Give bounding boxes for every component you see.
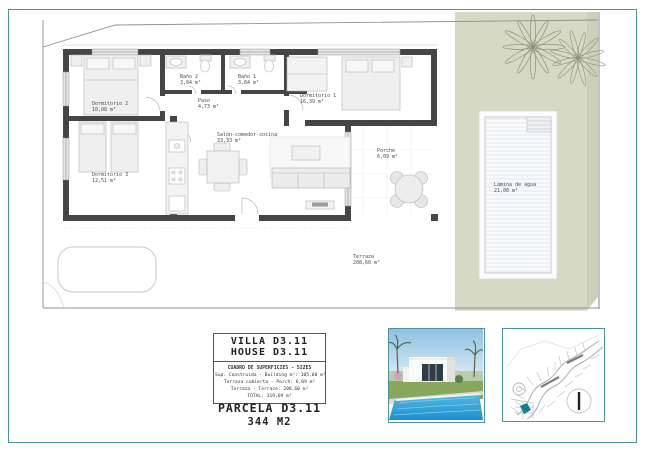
- site-plan-graphic: [503, 329, 603, 420]
- sizes-line: TOTAL: 319,69 m²: [215, 393, 324, 400]
- room-label-terraza: Terraza 208,60 m²: [353, 254, 380, 267]
- pool-steps: [527, 117, 551, 132]
- room-name: Dormitorio 3: [92, 172, 128, 178]
- room-name: Paso: [198, 98, 210, 104]
- room-area: 10,08 m²: [92, 107, 128, 113]
- room-name: Lámina de agua: [494, 182, 536, 188]
- room-area: 6,09 m²: [377, 154, 398, 160]
- parcel-area: 344 M2: [213, 415, 326, 429]
- site-plan-map: [502, 328, 605, 422]
- room-label-dormitorio-1: Dormitorio 1 16,39 m²: [300, 93, 336, 106]
- room-label-salon: Salón-comedor-cocina 33,33 m²: [217, 132, 277, 145]
- room-name: Baño 1: [238, 74, 256, 80]
- room-area: 16,39 m²: [300, 99, 336, 105]
- room-label-bano-1: Baño 1 3,84 m²: [238, 74, 259, 87]
- room-label-bano-2: Baño 2 3,84 m²: [180, 74, 201, 87]
- pool: [479, 111, 557, 279]
- room-area: 3,84 m²: [238, 80, 259, 86]
- plan-sheet: Dormitorio 2 10,08 m² Dormitorio 3 12,51…: [0, 0, 645, 451]
- villa-render-graphic: [389, 329, 483, 421]
- house-title: HOUSE D3.11: [214, 347, 325, 358]
- villa-render-image: [388, 328, 485, 423]
- room-name: Salón-comedor-cocina: [217, 132, 277, 138]
- sizes-line: Sup. Construida - Building m²: 105,00 m²: [215, 372, 324, 379]
- room-area: 4,73 m²: [198, 104, 219, 110]
- room-label-lamina-de-agua: Lámina de agua 21,00 m²: [494, 182, 536, 195]
- parcel-title: PARCELA D3.11: [213, 402, 326, 415]
- room-name: Porche: [377, 148, 395, 154]
- room-area: 33,33 m²: [217, 138, 277, 144]
- room-name: Dormitorio 1: [300, 93, 336, 99]
- room-label-paso: Paso 4,73 m²: [198, 98, 219, 111]
- room-area: 208,60 m²: [353, 260, 380, 266]
- title-block-header: VILLA D3.11 HOUSE D3.11: [213, 333, 326, 362]
- room-name: Dormitorio 2: [92, 101, 128, 107]
- room-name: Terraza: [353, 254, 374, 260]
- sizes-header: CUADRO DE SUPERFICIES - SIZES: [215, 365, 324, 372]
- room-label-porche: Porche 6,09 m²: [377, 148, 398, 161]
- room-area: 12,51 m²: [92, 178, 128, 184]
- highlighted-parcel: [520, 403, 531, 414]
- room-area: 21,00 m²: [494, 188, 536, 194]
- parcel-block: PARCELA D3.11 344 M2: [213, 402, 326, 429]
- north-indicator-icon: [567, 389, 591, 413]
- room-name: Baño 2: [180, 74, 198, 80]
- title-block: VILLA D3.11 HOUSE D3.11 CUADRO DE SUPERF…: [213, 333, 326, 404]
- room-label-dormitorio-2: Dormitorio 2 10,08 m²: [92, 101, 128, 114]
- room-area: 3,84 m²: [180, 80, 201, 86]
- villa-title: VILLA D3.11: [214, 336, 325, 347]
- car-outline: [43, 247, 156, 308]
- sizes-line: Terraza - Terrace: 208,60 m²: [215, 386, 324, 393]
- sizes-line: Terraza cubierta - Porch: 6,09 m²: [215, 379, 324, 386]
- sizes-table: CUADRO DE SUPERFICIES - SIZES Sup. Const…: [213, 362, 326, 404]
- room-label-dormitorio-3: Dormitorio 3 12,51 m²: [92, 172, 128, 185]
